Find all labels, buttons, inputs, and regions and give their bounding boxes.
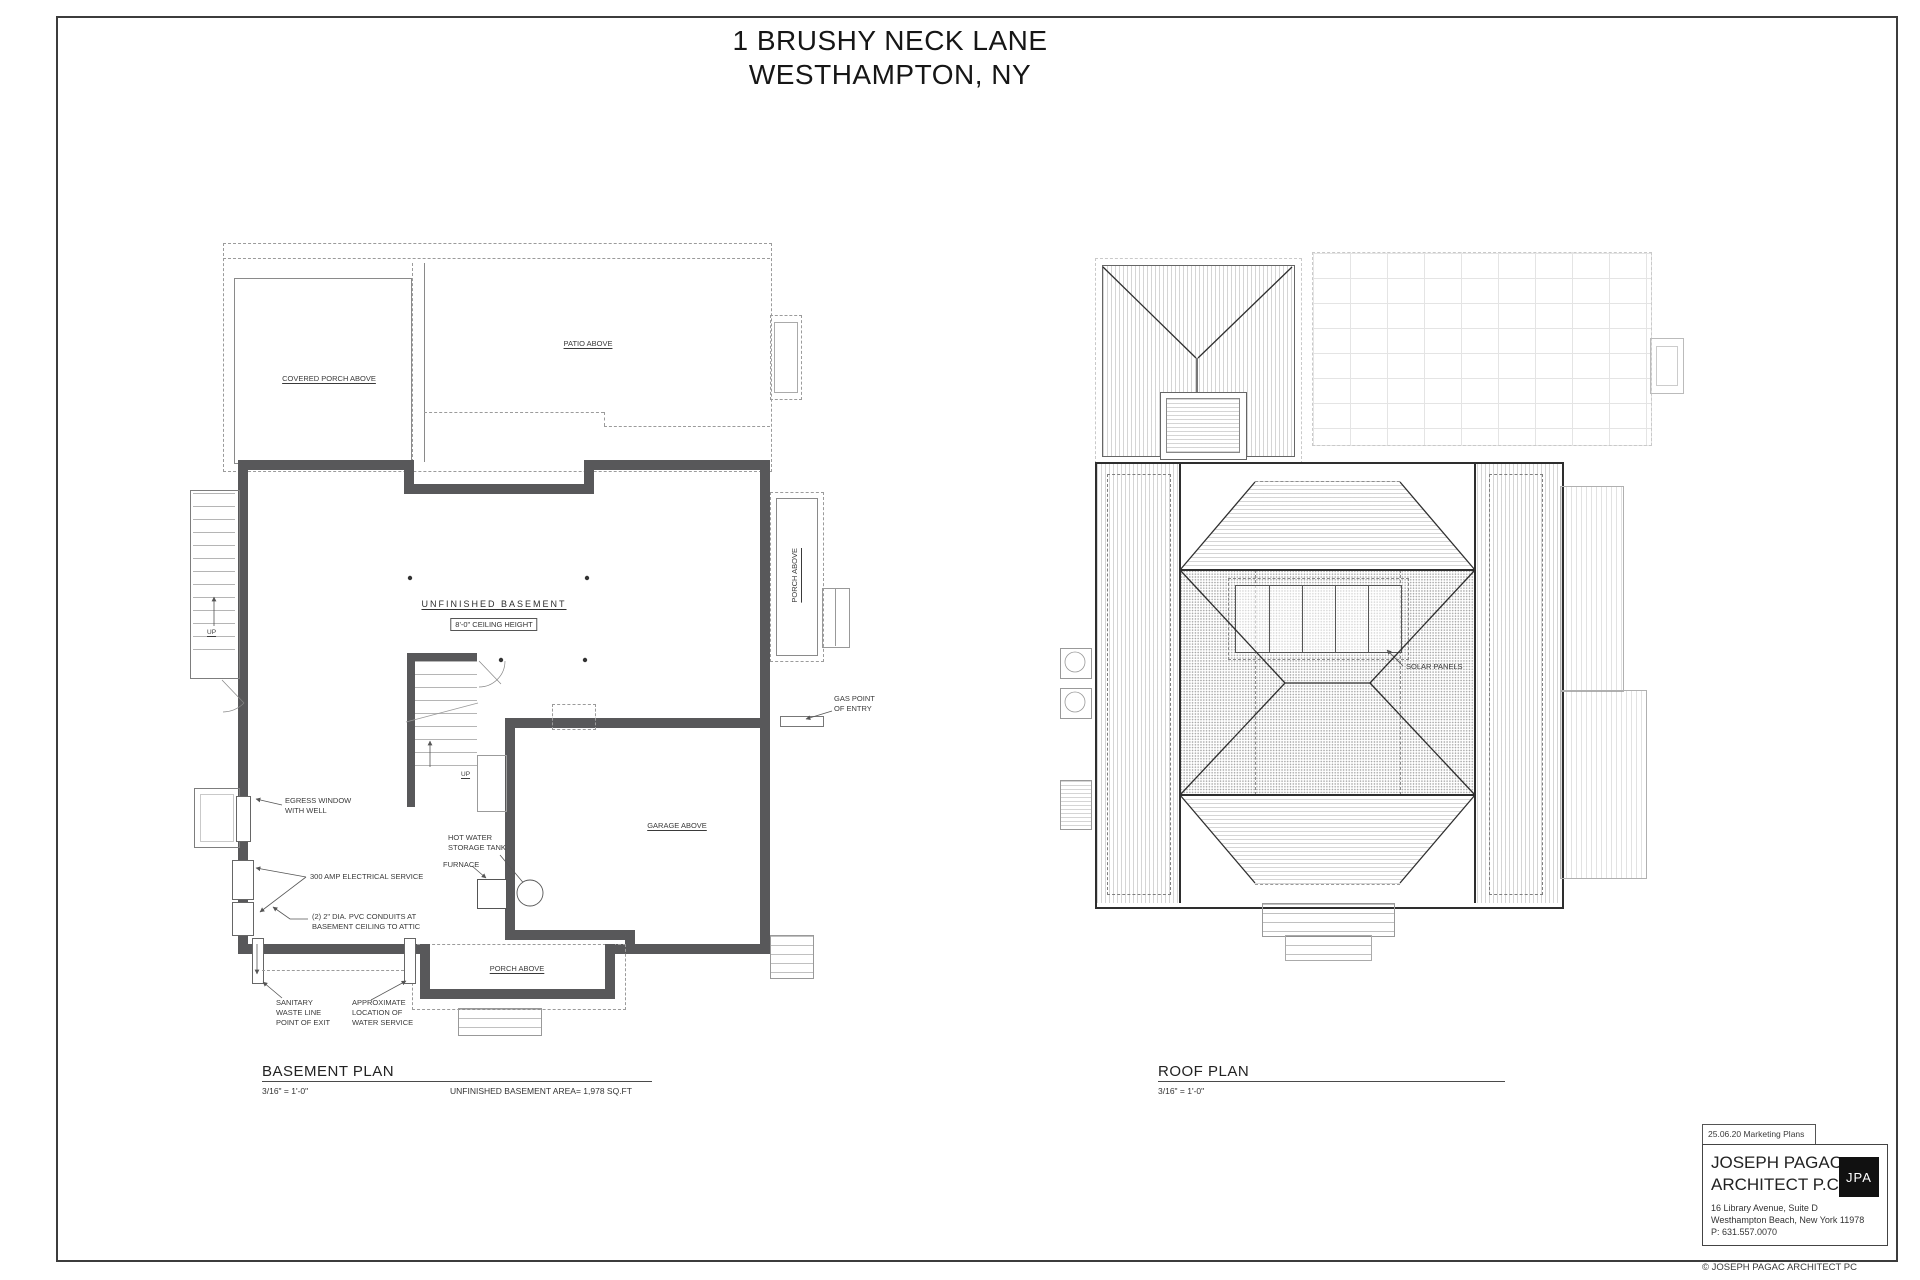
roof-plan-title: ROOF PLAN [1158,1063,1249,1080]
sheet-title-line2: WESTHAMPTON, NY [732,58,1047,92]
water-service-note: APPROXIMATE LOCATION OF WATER SERVICE [352,998,413,1028]
center-stair-wall-left [407,653,415,807]
up-label-left: UP [207,629,216,638]
side-porch-label: PORCH ABOVE [790,548,800,603]
steps-lines [771,936,813,978]
patio-bottom-dash-3 [604,426,770,427]
revision-note: 25.06.20 Marketing Plans [1708,1129,1804,1140]
up-label-center: UP [461,771,470,780]
roof-fan-box-2 [1060,688,1092,719]
egress-window-well-inner [200,794,234,842]
paver-patio-bumpout-inner [1656,346,1678,386]
patio-label: PATIO ABOVE [564,339,613,349]
egress-note-line1: EGRESS WINDOW [285,796,351,806]
conduit-note-line1: (2) 2" DIA. PVC CONDUITS AT [312,912,420,922]
sanitary-note: SANITARY WASTE LINE POINT OF EXIT [276,998,330,1028]
solar-panel-divider [1335,586,1336,652]
garage-label: GARAGE ABOVE [647,821,707,831]
wall-right [760,460,770,954]
roof-bottom-steps-2 [1285,935,1372,961]
patio-bottom-dash-1 [424,412,604,413]
basement-plan-title: BASEMENT PLAN [262,1063,394,1080]
roof-right-wing-dashed [1489,474,1543,895]
firm-name-line2: ARCHITECT P.C. [1711,1175,1844,1195]
center-stair-treads [415,661,477,771]
gas-note: GAS POINT OF ENTRY [834,694,875,714]
hot-water-note: HOT WATER STORAGE TANK [448,833,506,853]
sheet-title: 1 BRUSHY NECK LANE WESTHAMPTON, NY [732,24,1047,92]
wall-top-right [588,460,770,470]
utility-dashed-link [262,970,404,971]
garage-wall-step [625,930,635,954]
water-service-note-line3: WATER SERVICE [352,1018,413,1028]
wall-notch-bottom [404,484,594,494]
water-service-note-line1: APPROXIMATE [352,998,413,1008]
roof-plan-scale: 3/16" = 1'-0" [1158,1086,1204,1096]
water-service-pipe [404,938,416,984]
gas-service-fitting [780,716,824,727]
hot-water-note-line1: HOT WATER [448,833,506,843]
center-stair-landing [477,755,507,812]
ceiling-height-note: 8'-0" CEILING HEIGHT [450,618,537,631]
roof-vent-grid [1060,780,1092,830]
firm-phone: P: 631.557.0070 [1711,1227,1777,1237]
porch-patio-divider [424,263,425,462]
patio-bumpout [774,322,798,393]
bottom-porch-steps [458,1008,542,1036]
roof-top-notch [1255,464,1400,482]
covered-porch-label: COVERED PORCH ABOVE [282,374,376,384]
solar-array [1235,585,1402,653]
patio-bottom-dash-2 [604,412,605,426]
sanitary-note-line2: WASTE LINE [276,1008,330,1018]
solar-panel-divider [1302,586,1303,652]
electrical-note: 300 AMP ELECTRICAL SERVICE [310,872,423,882]
garage-wall-top [505,718,760,728]
roof-left-wing-dashed [1107,474,1171,895]
conduit-note: (2) 2" DIA. PVC CONDUITS AT BASEMENT CEI… [312,912,420,932]
hot-water-note-line2: STORAGE TANK [448,843,506,853]
copyright-note: © JOSEPH PAGAC ARCHITECT PC [1702,1262,1857,1275]
solar-panel-divider [1269,586,1270,652]
firm-box: JOSEPH PAGAC ARCHITECT P.C. JPA 16 Libra… [1702,1144,1888,1246]
drawing-sheet: 1 BRUSHY NECK LANE WESTHAMPTON, NY [0,0,1920,1280]
garage-dormer-inner [1166,398,1240,453]
solar-panel-divider [1368,586,1369,652]
side-porch-steps-line [835,588,836,646]
steps-lines [1286,936,1371,960]
basement-plan-scale: 3/16" = 1'-0" [262,1086,308,1096]
conduit-note-line2: BASEMENT CEILING TO ATTIC [312,922,420,932]
paver-patio [1312,252,1652,446]
revision-box: 25.06.20 Marketing Plans [1702,1124,1816,1146]
steps-lines [459,1009,541,1035]
basement-room-label: UNFINISHED BASEMENT [421,599,566,609]
gas-note-line2: OF ENTRY [834,704,875,714]
firm-logo: JPA [1839,1157,1879,1197]
covered-porch-outline [234,278,412,464]
steps-lines [1263,904,1394,936]
garage-exterior-steps [770,935,814,979]
roof-right-ext-lower [1560,690,1647,879]
egress-note-line2: WITH WELL [285,806,351,816]
roof-plan-title-rule [1158,1081,1505,1082]
wall-top-left [238,460,410,470]
egress-note: EGRESS WINDOW WITH WELL [285,796,351,816]
electrical-panel-1 [232,860,254,900]
patio-dashed-top-line [223,258,770,259]
roof-bottom-steps-1 [1262,903,1395,937]
firm-address-line2: Westhampton Beach, New York 11978 [1711,1215,1864,1225]
sanitary-note-line1: SANITARY [276,998,330,1008]
egress-window [236,796,251,842]
center-stair-wall-top [407,653,477,661]
roof-fan-box-1 [1060,648,1092,679]
furnace-unit [477,879,507,909]
porch-patio-divider-dashed [412,263,413,462]
bottom-porch-dashed-skirt [412,944,626,1010]
water-service-note-line2: LOCATION OF [352,1008,413,1018]
sheet-title-line1: 1 BRUSHY NECK LANE [732,24,1047,58]
electrical-panel-2 [232,902,254,936]
solar-label: SOLAR PANELS [1406,662,1463,672]
gas-note-line1: GAS POINT [834,694,875,704]
furnace-note: FURNACE [443,860,479,870]
bottom-porch-wall-bottom [420,989,615,999]
firm-address-line1: 16 Library Avenue, Suite D [1711,1203,1818,1213]
basement-area-note: UNFINISHED BASEMENT AREA= 1,978 SQ.FT [450,1086,632,1096]
basement-plan-title-rule [262,1081,652,1082]
side-porch-steps [822,588,850,648]
sanitary-note-line3: POINT OF EXIT [276,1018,330,1028]
garage-wall-bottom [505,930,635,940]
roof-right-ext-upper [1560,486,1624,692]
left-exterior-stair [190,490,240,679]
bottom-porch-label: PORCH ABOVE [490,964,545,974]
firm-name-line1: JOSEPH PAGAC [1711,1153,1842,1173]
sanitary-pipe [252,938,264,984]
wall-bottom-left [238,944,430,954]
garage-dashed-pad [552,704,596,730]
roof-bottom-notch [1255,884,1400,904]
